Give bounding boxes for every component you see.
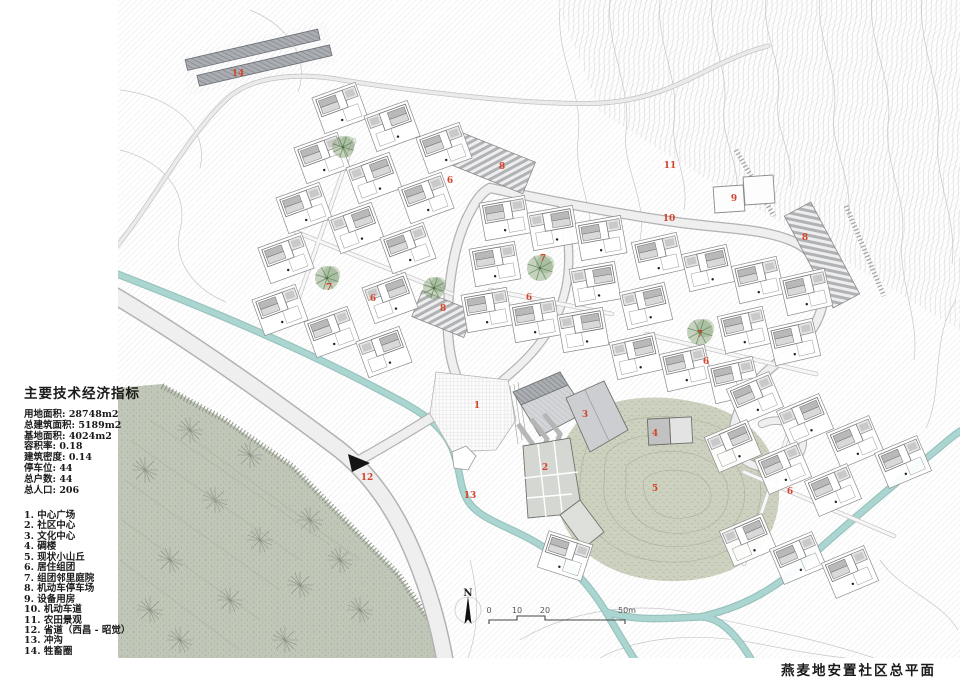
area-label-3: 3 [582, 410, 588, 420]
area-label-8: 8 [802, 233, 808, 243]
area-label-7: 7 [697, 330, 703, 340]
drawing-title: 燕麦地安置社区总平面 [0, 659, 936, 679]
area-label-14: 14 [232, 69, 245, 79]
house-cluster-middle [461, 287, 513, 332]
area-label-13: 13 [464, 491, 477, 501]
area-label-7: 7 [540, 254, 546, 264]
area-label-11: 11 [664, 161, 677, 171]
site-plan-sheet: 123456666677788891011121314 N 0102050m 主… [0, 0, 960, 679]
indicators-title: 主要技术经济指标 [24, 382, 204, 402]
area-label-8: 8 [440, 304, 446, 314]
area-label-6: 6 [526, 293, 532, 303]
area-label-6: 6 [447, 176, 453, 186]
legend-panel: 1. 中心广场2. 社区中心3. 文化中心4. 碉楼5. 现状小山丘6. 居住组… [24, 511, 214, 657]
area-label-7: 7 [326, 283, 332, 293]
area-label-10: 10 [663, 214, 676, 224]
scalebar-label-10: 10 [512, 606, 522, 615]
area-label-12: 12 [361, 473, 374, 483]
house-cluster-middle [557, 307, 609, 352]
indicator-line-8: 总人口: 206 [24, 486, 204, 497]
legend-item-14: 14. 牲畜圈 [24, 647, 214, 657]
indicator-line-2: 总建筑面积: 5189m2 [24, 421, 204, 432]
area-label-2: 2 [542, 463, 548, 473]
house-cluster-middle [469, 241, 521, 286]
scalebar-label-50m: 50m [618, 606, 636, 615]
house-cluster-middle [479, 195, 531, 240]
area-label-9: 9 [731, 194, 737, 204]
house-cluster-middle [509, 297, 561, 342]
scalebar-label-0: 0 [486, 606, 491, 615]
legend-item-10: 10. 机动车道 [24, 605, 214, 615]
house-cluster-middle [569, 261, 621, 306]
area-label-8: 8 [499, 162, 505, 172]
north-label: N [463, 588, 472, 599]
area-label-1: 1 [474, 401, 480, 411]
area-label-5: 5 [652, 484, 658, 494]
indicator-line-7: 总户数: 44 [24, 475, 204, 486]
area-label-6: 6 [703, 357, 709, 367]
indicator-lines: 用地面积: 28748m2总建筑面积: 5189m2基地面积: 4024m2容积… [24, 410, 204, 496]
scalebar-label-20: 20 [540, 606, 550, 615]
area-label-6: 6 [787, 487, 793, 497]
area-label-6: 6 [370, 294, 376, 304]
area-label-4: 4 [652, 429, 658, 439]
house-cluster-middle [527, 205, 579, 250]
technical-indicators-panel: 主要技术经济指标 用地面积: 28748m2总建筑面积: 5189m2基地面积:… [24, 382, 204, 496]
house-cluster-middle [575, 215, 627, 260]
